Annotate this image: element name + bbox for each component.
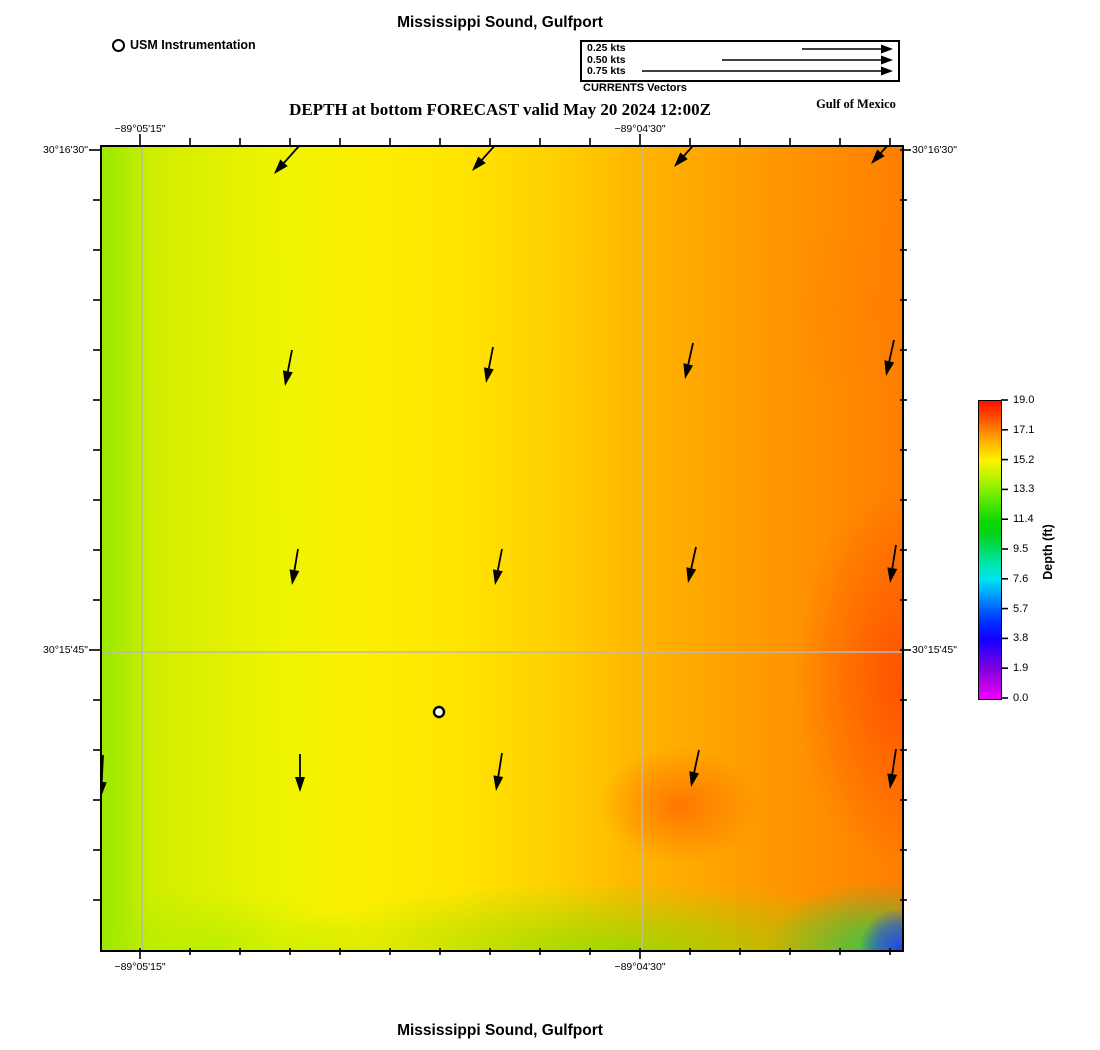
current-vector-legend-box: 0.25 kts 0.50 kts 0.75 kts bbox=[580, 40, 900, 82]
footer-title: Mississippi Sound, Gulfport bbox=[397, 1022, 603, 1040]
current-vector bbox=[694, 750, 699, 772]
colorbar-tick-label: 1.9 bbox=[1013, 662, 1028, 674]
legend-arrow-head bbox=[881, 45, 893, 54]
ylabel-left-upper: 30°16'30" bbox=[26, 144, 88, 156]
legend-arrow-head bbox=[881, 67, 893, 76]
current-vector bbox=[688, 343, 693, 364]
xlabel-bottom-left: −89°05'15" bbox=[114, 961, 165, 973]
colorbar-tick-label: 3.8 bbox=[1013, 632, 1028, 644]
forecast-subtitle: DEPTH at bottom FORECAST valid May 20 20… bbox=[289, 100, 711, 120]
current-vector bbox=[284, 147, 308, 163]
current-vector-head bbox=[683, 363, 693, 379]
current-vector-head bbox=[887, 773, 897, 789]
colorbar-tick-label: 19.0 bbox=[1013, 394, 1034, 406]
current-vector-head bbox=[884, 360, 894, 376]
depth-heatmap bbox=[100, 145, 904, 952]
current-vector-head bbox=[493, 775, 503, 791]
colorbar bbox=[978, 400, 1002, 700]
current-vector-head bbox=[102, 782, 107, 797]
current-vector-head bbox=[493, 569, 503, 585]
current-vector bbox=[892, 545, 896, 568]
current-vector bbox=[881, 147, 902, 153]
current-vector bbox=[482, 147, 506, 160]
colorbar-tick-label: 5.7 bbox=[1013, 603, 1028, 615]
forecast-plot-page: Mississippi Sound, Gulfport USM Instrume… bbox=[0, 0, 1100, 1050]
colorbar-tick-label: 17.1 bbox=[1013, 424, 1034, 436]
current-vector bbox=[889, 340, 894, 361]
current-vector bbox=[288, 350, 292, 371]
current-vector bbox=[498, 549, 502, 570]
ylabel-right-lower: 30°15'45" bbox=[912, 644, 957, 656]
colorbar-tick-label: 9.5 bbox=[1013, 543, 1028, 555]
current-vector-head bbox=[290, 569, 300, 585]
vector-legend-caption: CURRENTS Vectors bbox=[583, 82, 687, 94]
current-vector-head bbox=[295, 777, 305, 792]
current-vector-head bbox=[484, 367, 494, 383]
current-vector bbox=[684, 147, 708, 156]
instrumentation-legend: USM Instrumentation bbox=[112, 38, 256, 52]
current-vector bbox=[294, 549, 298, 570]
region-label: Gulf of Mexico bbox=[816, 97, 896, 112]
xlabel-top-right: −89°04'30" bbox=[614, 123, 665, 135]
current-vector bbox=[102, 755, 103, 782]
current-vector-head bbox=[689, 771, 699, 787]
current-vector bbox=[489, 347, 493, 368]
legend-arrows-icon bbox=[582, 42, 898, 80]
colorbar-tick-label: 0.0 bbox=[1013, 692, 1028, 704]
colorbar-tick-label: 11.4 bbox=[1013, 513, 1034, 525]
current-vector-head bbox=[887, 567, 897, 583]
xlabel-top-left: −89°05'15" bbox=[114, 123, 165, 135]
station-marker-icon bbox=[434, 707, 444, 717]
current-vector-head bbox=[283, 370, 293, 386]
current-vector bbox=[892, 749, 896, 774]
xlabel-bottom-right: −89°04'30" bbox=[614, 961, 665, 973]
station-marker-icon bbox=[112, 39, 125, 52]
map-overlay-layer bbox=[102, 147, 902, 950]
colorbar-tick-label: 7.6 bbox=[1013, 573, 1028, 585]
ylabel-right-upper: 30°16'30" bbox=[912, 144, 957, 156]
page-title: Mississippi Sound, Gulfport bbox=[397, 14, 603, 32]
colorbar-tick-label: 15.2 bbox=[1013, 454, 1034, 466]
legend-arrow-head bbox=[881, 56, 893, 65]
ylabel-left-lower: 30°15'45" bbox=[26, 644, 88, 656]
current-vector bbox=[498, 753, 502, 776]
colorbar-tick-label: 13.3 bbox=[1013, 483, 1034, 495]
current-vector bbox=[691, 547, 696, 568]
instrumentation-label: USM Instrumentation bbox=[130, 38, 256, 52]
current-vector-head bbox=[686, 567, 696, 583]
colorbar-title: Depth (ft) bbox=[1041, 524, 1055, 580]
